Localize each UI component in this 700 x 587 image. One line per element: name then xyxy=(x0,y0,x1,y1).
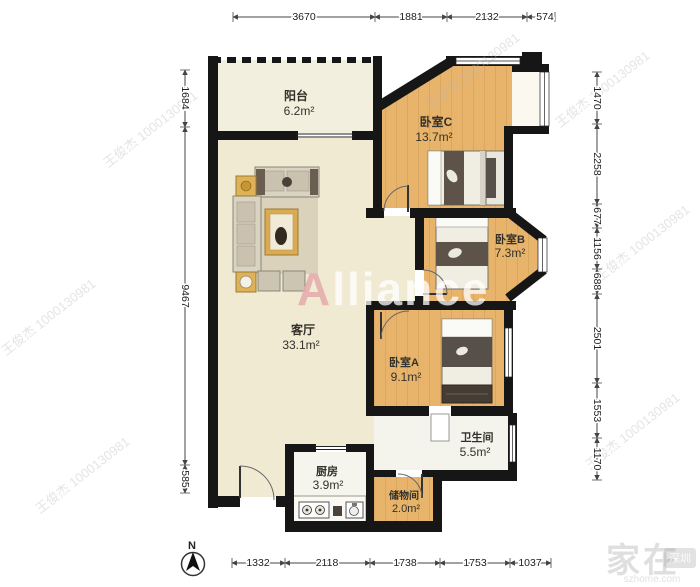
floor-plan-page: 阳台 6.2m² 卧室C 13.7m² 卧室B 7.3m² 卧室A 9.1m² … xyxy=(0,0,700,587)
window xyxy=(510,425,516,462)
watermark-brand-initial: A xyxy=(297,263,330,315)
watermark-agent: 王俊杰 1000130981 xyxy=(0,276,98,359)
ottoman xyxy=(258,271,280,291)
dimension-value: 1470 xyxy=(591,86,603,110)
dimension-value: 1170 xyxy=(591,448,603,471)
room-label: 厨房 xyxy=(316,464,338,478)
dimension-line-top: 3670 1881 2132 574 xyxy=(233,11,555,23)
kitchen-opening xyxy=(314,447,348,450)
room-label: 卧室A xyxy=(389,355,419,369)
room-area: 2.0m² xyxy=(392,503,420,515)
room-label: 客厅 xyxy=(290,322,315,337)
room-area: 6.2m² xyxy=(284,104,315,118)
room-label: 阳台 xyxy=(284,88,308,103)
room-label: 卧室B xyxy=(495,232,525,246)
dimension-value: 1037 xyxy=(518,557,542,569)
bedroom-c-furniture xyxy=(428,151,508,205)
dimension-value: 2132 xyxy=(475,11,499,23)
stove-icon xyxy=(299,502,329,518)
dimension-value: 1753 xyxy=(463,557,487,569)
dimension-value: 1156 xyxy=(591,237,603,260)
dimension-value: 1332 xyxy=(246,557,270,569)
site-city-text: 深圳 xyxy=(669,552,691,565)
sink-icon xyxy=(346,502,363,518)
dimension-value: 2118 xyxy=(316,557,339,569)
bedroom-a-furniture xyxy=(442,319,492,403)
bed-icon xyxy=(442,319,492,403)
room-area: 3.9m² xyxy=(313,478,344,492)
dimension-value: 1738 xyxy=(393,557,417,569)
room-label: 储物间 xyxy=(388,489,419,502)
side-table-top xyxy=(236,176,256,196)
bed-icon xyxy=(428,151,486,205)
room-area: 33.1m² xyxy=(282,338,319,352)
window xyxy=(540,72,549,126)
room-label: 卫生间 xyxy=(461,430,494,444)
dimension-value: 574 xyxy=(536,11,554,23)
north-label: N xyxy=(188,540,196,552)
balcony-slider xyxy=(296,134,354,137)
room-area: 13.7m² xyxy=(415,130,452,144)
floor-plan-svg: 阳台 6.2m² 卧室C 13.7m² 卧室B 7.3m² 卧室A 9.1m² … xyxy=(0,0,700,587)
room-area: 5.5m² xyxy=(460,445,491,459)
north-compass: N xyxy=(182,540,205,576)
dimension-value: 1684 xyxy=(179,86,191,110)
dimension-value: 585 xyxy=(179,470,191,488)
dimension-line-bottom: 1332 2118 1738 1753 1037 xyxy=(232,557,551,569)
dimension-value: 9467 xyxy=(179,284,191,308)
kitchen-furniture xyxy=(293,496,366,522)
coffee-table xyxy=(265,209,298,255)
bay-window-c-floor xyxy=(512,72,540,126)
dimension-value: 3670 xyxy=(292,11,316,23)
room-living-entry xyxy=(216,446,285,497)
room-label: 卧室C xyxy=(420,114,453,129)
dimension-value: 2501 xyxy=(591,327,603,351)
dimension-line-left: 1684 9467 585 xyxy=(179,70,191,493)
dimension-value: 677 xyxy=(591,207,603,225)
room-area: 7.3m² xyxy=(495,246,526,260)
dimension-line-right: 1470 2258 677 1156 688 2501 1553 1170 xyxy=(591,72,603,480)
window xyxy=(505,328,512,377)
watermark-site: 家在 深圳 szhome.com xyxy=(606,542,696,585)
sofa-top xyxy=(255,167,319,197)
bathroom-door-leaf xyxy=(431,414,449,441)
dimension-value: 2258 xyxy=(591,152,603,176)
dimension-value: 1881 xyxy=(399,11,423,23)
watermark-agent: 王俊杰 1000130981 xyxy=(593,202,693,285)
kitchen-appliance xyxy=(333,506,342,516)
watermark-agent: 王俊杰 1000130981 xyxy=(33,434,133,517)
room-area: 9.1m² xyxy=(391,370,422,384)
side-table-bottom xyxy=(236,272,256,292)
site-url-text: szhome.com xyxy=(624,574,681,585)
dimension-value: 688 xyxy=(591,273,603,291)
dimension-value: 1553 xyxy=(591,399,603,423)
sofa-left xyxy=(233,196,261,272)
window xyxy=(538,238,547,272)
